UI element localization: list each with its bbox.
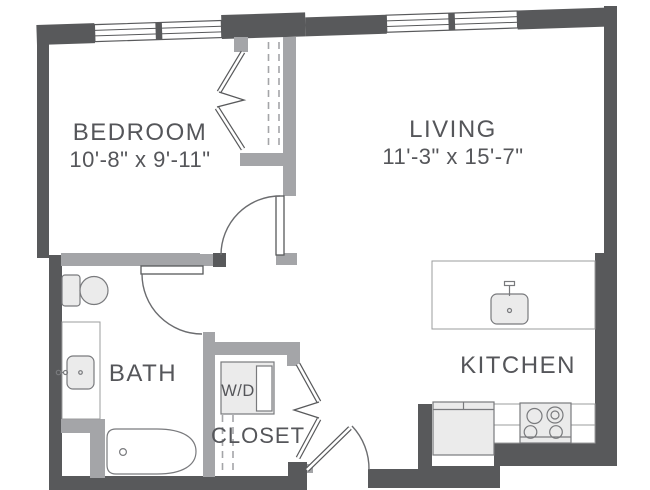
closet-bottom-stub xyxy=(288,462,307,477)
right-wall-lower xyxy=(595,253,617,466)
kitchen-west-stub xyxy=(418,404,432,466)
wall-segment xyxy=(517,7,614,29)
toilet-tank xyxy=(62,275,80,306)
bathtub xyxy=(107,429,196,474)
bedroom-closet-bifold-doors xyxy=(217,52,244,149)
entry-closet-top-wall xyxy=(203,342,300,355)
door-leaf xyxy=(276,196,284,255)
bifold-fold xyxy=(217,92,244,107)
left-wall-upper xyxy=(37,26,49,258)
sink-basin xyxy=(67,356,94,389)
vanity-sink xyxy=(56,322,100,419)
bedroom-closet-bottom-wall xyxy=(240,153,284,166)
bath-door xyxy=(141,266,203,334)
exterior-wall-top xyxy=(36,2,613,45)
bedroom-door xyxy=(221,196,284,255)
refrigerator xyxy=(433,402,494,455)
tub-outline xyxy=(107,429,196,474)
living-label: LIVING xyxy=(409,116,497,143)
bath-label: BATH xyxy=(109,360,177,387)
bedroom-dimensions: 10'-8" x 9'-11" xyxy=(69,147,210,172)
bath-closet-wall xyxy=(203,332,215,477)
door-leaf xyxy=(141,266,203,274)
faucet xyxy=(505,282,515,286)
living-window xyxy=(386,11,517,32)
door-swing-arc xyxy=(142,274,202,334)
wall-segment xyxy=(305,15,387,37)
kitchen-label: KITCHEN xyxy=(460,352,576,379)
tub-nook-wall-h xyxy=(61,419,105,433)
hall-wall-stub xyxy=(213,253,226,267)
closet-label: CLOSET xyxy=(211,423,305,448)
right-wall-upper xyxy=(604,6,617,256)
stove xyxy=(520,403,571,443)
wd-door xyxy=(257,366,273,411)
toilet xyxy=(62,275,108,306)
bedroom-label: BEDROOM xyxy=(73,119,208,146)
bottom-wall-under-fridge xyxy=(418,466,500,488)
floor-plan-drawing: BEDROOM 10'-8" x 9'-11" LIVING 11'-3" x … xyxy=(0,0,650,490)
door-swing-arc xyxy=(221,196,280,255)
window-mullion xyxy=(448,13,455,30)
washer-dryer-label: W/D xyxy=(221,382,255,400)
bedroom-closet-anchor xyxy=(234,37,248,52)
bottom-wall-left xyxy=(49,476,307,490)
bedroom-bath-wall xyxy=(61,253,200,266)
living-dimensions: 11'-3" x 15'-7" xyxy=(382,144,523,169)
bedroom-window xyxy=(94,21,221,42)
toilet-bowl xyxy=(80,277,108,305)
tub-nook-wall-v xyxy=(90,433,105,478)
door-swing-arc xyxy=(352,426,369,470)
floor-plan-canvas: BEDROOM 10'-8" x 9'-11" LIVING 11'-3" x … xyxy=(0,0,650,490)
window-mullion xyxy=(155,22,162,39)
kitchen-island xyxy=(432,261,595,329)
bifold-fold xyxy=(294,402,319,418)
kitchen-south-wall xyxy=(494,443,617,466)
wall-segment xyxy=(221,12,306,39)
bath-door-jamb xyxy=(200,254,213,266)
bedroom-living-wall xyxy=(283,37,296,196)
entry-door xyxy=(307,426,369,470)
